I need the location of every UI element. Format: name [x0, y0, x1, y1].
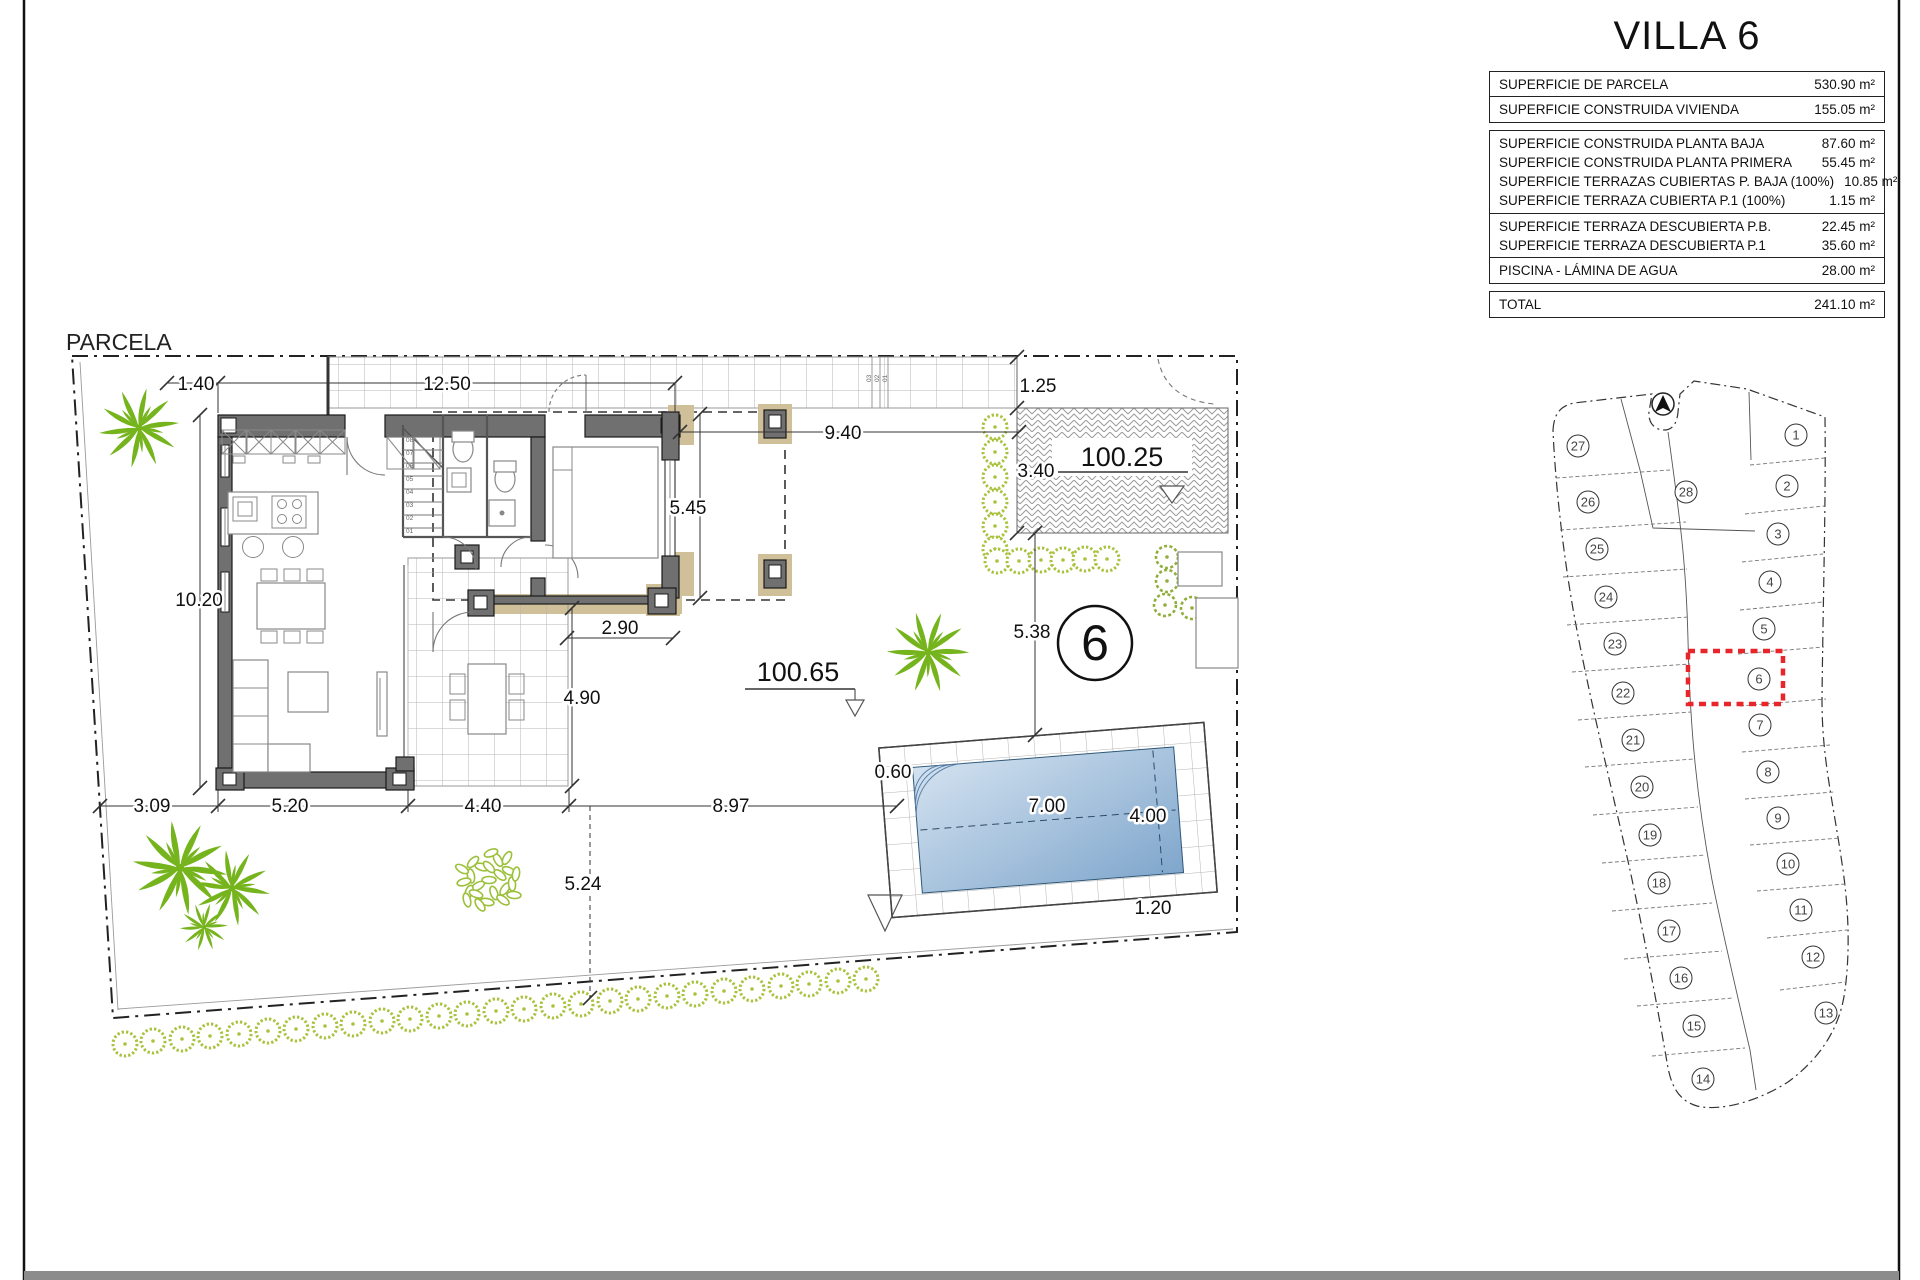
row-value: 35.60 m²: [1822, 236, 1875, 255]
entry-step-label: 03: [866, 374, 873, 382]
dim-front-right: 9.40: [825, 423, 862, 444]
dim-b4: 8.97: [713, 796, 750, 817]
table-row: SUPERFICIE TERRAZAS CUBIERTAS P. BAJA (1…: [1499, 172, 1875, 191]
svg-text:21: 21: [1626, 733, 1640, 748]
dim-terrace-depth: 4.90: [564, 688, 601, 709]
svg-text:15: 15: [1687, 1019, 1701, 1034]
table-row: SUPERFICIE DE PARCELA 530.90 m²: [1499, 75, 1875, 94]
svg-text:3: 3: [1774, 527, 1781, 542]
row-label: SUPERFICIE TERRAZAS CUBIERTAS P. BAJA (1…: [1499, 172, 1834, 191]
sofa-corner: [268, 744, 310, 772]
dim-pool-top: 5.38: [1014, 622, 1051, 643]
svg-text:2: 2: [1783, 479, 1790, 494]
shrub: [454, 847, 521, 912]
svg-text:1: 1: [1792, 428, 1799, 443]
svg-text:7: 7: [1756, 718, 1763, 733]
svg-text:28: 28: [1679, 485, 1693, 500]
row-value: 28.00 m²: [1822, 261, 1875, 280]
stool: [243, 537, 264, 558]
table-row: SUPERFICIE TERRAZA DESCUBIERTA P.1 35.60…: [1499, 236, 1875, 255]
parcela-plan: PARCELA 03 02 01 100.25: [66, 329, 1238, 1056]
svg-text:25: 25: [1590, 542, 1604, 557]
dim-side: 10.20: [175, 590, 223, 611]
svg-text:13: 13: [1819, 1006, 1833, 1021]
svg-text:16: 16: [1674, 971, 1688, 986]
table-row: TOTAL 241.10 m²: [1499, 295, 1875, 314]
svg-text:02: 02: [406, 515, 414, 522]
row-label: SUPERFICIE TERRAZA DESCUBIERTA P.1: [1499, 236, 1766, 255]
dim-pool-deck-bottom: 1.20: [1135, 898, 1172, 919]
dim-fence: 1.40: [178, 374, 215, 395]
row-label: SUPERFICIE CONSTRUIDA PLANTA BAJA: [1499, 134, 1764, 153]
table-row: SUPERFICIE CONSTRUIDA VIVIENDA 155.05 m²: [1499, 100, 1875, 119]
svg-text:27: 27: [1571, 439, 1585, 454]
svg-text:6: 6: [1755, 672, 1762, 687]
table-row: SUPERFICIE TERRAZA CUBIERTA P.1 (100%) 1…: [1499, 191, 1875, 210]
area-table-box: PISCINA - LÁMINA DE AGUA 28.00 m²: [1489, 257, 1885, 284]
row-value: 530.90 m²: [1814, 75, 1875, 94]
area-table-box: SUPERFICIE DE PARCELA 530.90 m²: [1489, 71, 1885, 98]
svg-text:04: 04: [406, 489, 414, 496]
svg-text:05: 05: [406, 476, 414, 483]
dim-b1: 3.09: [134, 796, 171, 817]
sheet: PARCELA 03 02 01 100.25: [0, 0, 1920, 1280]
site-plan-plot-numbers: 1 2 3 4 5 6 7 8 9 10 11 12 13 14 15 16 1…: [1567, 424, 1837, 1090]
dim-porch: 2.90: [602, 618, 639, 639]
svg-text:12: 12: [1806, 950, 1820, 965]
living-area: [233, 660, 387, 772]
row-label: PISCINA - LÁMINA DE AGUA: [1499, 261, 1678, 280]
driveway-level: 100.25: [1081, 442, 1164, 472]
dim-front: 12.50: [423, 374, 471, 395]
dim-drive: 3.40: [1018, 461, 1055, 482]
svg-text:08: 08: [406, 437, 414, 444]
parcela-label: PARCELA: [66, 329, 172, 355]
pool: 0.60 7.00 4.00 1.20: [868, 722, 1217, 931]
svg-text:4: 4: [1766, 575, 1773, 590]
tv-panel: [377, 672, 387, 736]
svg-text:100.65: 100.65: [757, 657, 840, 687]
row-label: SUPERFICIE DE PARCELA: [1499, 75, 1668, 94]
stair-numbers: 01 02 03 04 05 06 07 08: [406, 437, 414, 535]
row-label: SUPERFICIE TERRAZA DESCUBIERTA P.B.: [1499, 217, 1771, 236]
row-value: 87.60 m²: [1822, 134, 1875, 153]
stool: [283, 537, 304, 558]
row-label: SUPERFICIE CONSTRUIDA VIVIENDA: [1499, 100, 1739, 119]
entry-step-label: 02: [874, 374, 881, 382]
row-value: 22.45 m²: [1822, 217, 1875, 236]
svg-text:18: 18: [1652, 876, 1666, 891]
title-block: VILLA 6 SUPERFICIE DE PARCELA 530.90 m² …: [1489, 14, 1885, 318]
svg-text:17: 17: [1662, 924, 1676, 939]
svg-text:07: 07: [406, 450, 414, 457]
svg-text:5: 5: [1760, 622, 1767, 637]
row-value: 55.45 m²: [1822, 153, 1875, 172]
svg-text:23: 23: [1608, 637, 1622, 652]
svg-text:14: 14: [1696, 1072, 1710, 1087]
svg-text:8: 8: [1764, 765, 1771, 780]
bedroom: [553, 447, 658, 558]
row-value: 10.85 m²: [1844, 172, 1897, 191]
dim-pool-width: 4.00: [1130, 806, 1167, 827]
villa-title: VILLA 6: [1489, 14, 1885, 59]
svg-text:22: 22: [1616, 686, 1630, 701]
garden-level-label: 100.65: [745, 657, 864, 716]
dining-table: [257, 583, 325, 629]
north-arrow: [1652, 393, 1674, 415]
svg-text:9: 9: [1774, 811, 1781, 826]
row-value: 241.10 m²: [1814, 295, 1875, 314]
plot-number-badge: 6: [1058, 606, 1132, 680]
area-table-box-total: TOTAL 241.10 m²: [1489, 291, 1885, 318]
site-plan: 1 2 3 4 5 6 7 8 9 10 11 12 13 14 15 16 1…: [1553, 381, 1848, 1108]
entry-step-label: 01: [882, 374, 889, 382]
table-row: SUPERFICIE CONSTRUIDA PLANTA PRIMERA 55.…: [1499, 153, 1875, 172]
row-value: 1.15 m²: [1829, 191, 1875, 210]
bathroom-fixtures: [447, 431, 516, 526]
dim-b2: 5.20: [272, 796, 309, 817]
bed: [553, 447, 658, 558]
svg-text:10: 10: [1781, 857, 1795, 872]
svg-text:24: 24: [1599, 590, 1613, 605]
row-label: SUPERFICIE CONSTRUIDA PLANTA PRIMERA: [1499, 153, 1792, 172]
dim-pool-length: 7.00: [1029, 796, 1066, 817]
row-label: TOTAL: [1499, 295, 1541, 314]
dim-pool-deck-left: 0.60: [875, 762, 912, 783]
area-table-box: SUPERFICIE CONSTRUIDA PLANTA BAJA 87.60 …: [1489, 130, 1885, 214]
svg-text:03: 03: [406, 502, 414, 509]
plot-number: 6: [1081, 615, 1109, 671]
row-label: SUPERFICIE TERRAZA CUBIERTA P.1 (100%): [1499, 191, 1785, 210]
planter: [1196, 598, 1238, 668]
dining-area: [257, 569, 325, 643]
svg-text:20: 20: [1635, 780, 1649, 795]
dim-upper: 5.45: [670, 498, 707, 519]
svg-text:19: 19: [1643, 828, 1657, 843]
svg-text:11: 11: [1794, 903, 1808, 918]
footer-bar: [24, 1271, 1899, 1280]
svg-text:26: 26: [1581, 495, 1595, 510]
table-row: SUPERFICIE CONSTRUIDA PLANTA BAJA 87.60 …: [1499, 134, 1875, 153]
patio-element: [1178, 552, 1222, 586]
table-row: PISCINA - LÁMINA DE AGUA 28.00 m²: [1499, 261, 1875, 280]
table-row: SUPERFICIE TERRAZA DESCUBIERTA P.B. 22.4…: [1499, 217, 1875, 236]
dim-b3: 4.40: [465, 796, 502, 817]
dim-walk: 1.25: [1020, 376, 1057, 397]
coffee-table: [288, 672, 328, 712]
svg-text:01: 01: [406, 528, 414, 535]
house: 01 02 03 04 05 06 07 08: [216, 375, 792, 790]
area-table-box: SUPERFICIE TERRAZA DESCUBIERTA P.B. 22.4…: [1489, 213, 1885, 259]
dim-garden-depth: 5.24: [565, 874, 602, 895]
gate-swing-arc: [1158, 359, 1214, 404]
area-table-box: SUPERFICIE CONSTRUIDA VIVIENDA 155.05 m²: [1489, 96, 1885, 123]
row-value: 155.05 m²: [1814, 100, 1875, 119]
